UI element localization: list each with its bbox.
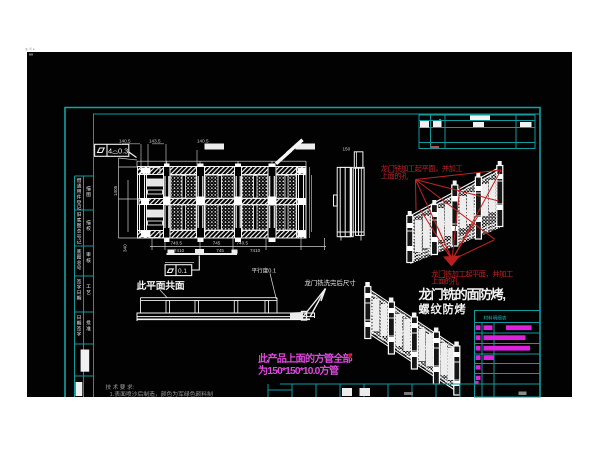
svg-text:740.5: 740.5 [171, 240, 183, 245]
svg-text:745: 745 [213, 240, 221, 245]
svg-text:7410: 7410 [174, 248, 185, 253]
svg-text:140.5: 140.5 [119, 139, 131, 144]
svg-text:借通用件登记: 借通用件登记 [77, 177, 82, 211]
svg-text:此产品上面的方管全部: 此产品上面的方管全部 [258, 352, 352, 365]
svg-text:描校: 描校 [86, 219, 91, 232]
svg-text:1.表面喷沙后制造，颜色为军绿色颜料制: 1.表面喷沙后制造，颜色为军绿色颜料制 [110, 390, 214, 398]
svg-text:740.5: 740.5 [237, 240, 249, 245]
svg-text:材料明细表: 材料明细表 [484, 315, 507, 322]
svg-text:4⌓0.3: 4⌓0.3 [108, 147, 128, 156]
svg-text:上面的孔: 上面的孔 [431, 277, 458, 286]
svg-text:技 术 要 求:: 技 术 要 求: [106, 383, 135, 391]
svg-text:日期签字: 日期签字 [77, 315, 82, 338]
svg-text:旧底图总号记: 旧底图总号记 [77, 211, 82, 246]
svg-text:1405: 1405 [113, 185, 118, 196]
svg-text:143.5: 143.5 [149, 139, 161, 144]
svg-text:签字日期: 签字日期 [77, 278, 82, 302]
svg-text:龙门铣洗完后尺寸: 龙门铣洗完后尺寸 [305, 278, 357, 287]
svg-text:745: 745 [216, 248, 224, 253]
svg-text:140.5: 140.5 [197, 139, 209, 144]
svg-text:底图总号: 底图总号 [77, 248, 82, 272]
svg-text:批准: 批准 [86, 319, 91, 332]
svg-text:龙门铣的面防烤,: 龙门铣的面防烤, [418, 286, 506, 302]
svg-text:为150*150*10.0方管: 为150*150*10.0方管 [258, 364, 339, 377]
svg-text:0.1: 0.1 [178, 268, 187, 275]
svg-text:7410: 7410 [250, 248, 261, 253]
svg-text:螺纹防烤: 螺纹防烤 [419, 302, 467, 316]
svg-text:340: 340 [123, 244, 128, 252]
svg-text:平行度0.1: 平行度0.1 [252, 266, 277, 274]
svg-text:审核: 审核 [86, 251, 91, 264]
svg-text:此平面共面: 此平面共面 [137, 279, 185, 292]
svg-text:描图: 描图 [86, 185, 91, 198]
svg-text:上面的孔: 上面的孔 [381, 172, 408, 181]
svg-text:150: 150 [343, 147, 351, 152]
